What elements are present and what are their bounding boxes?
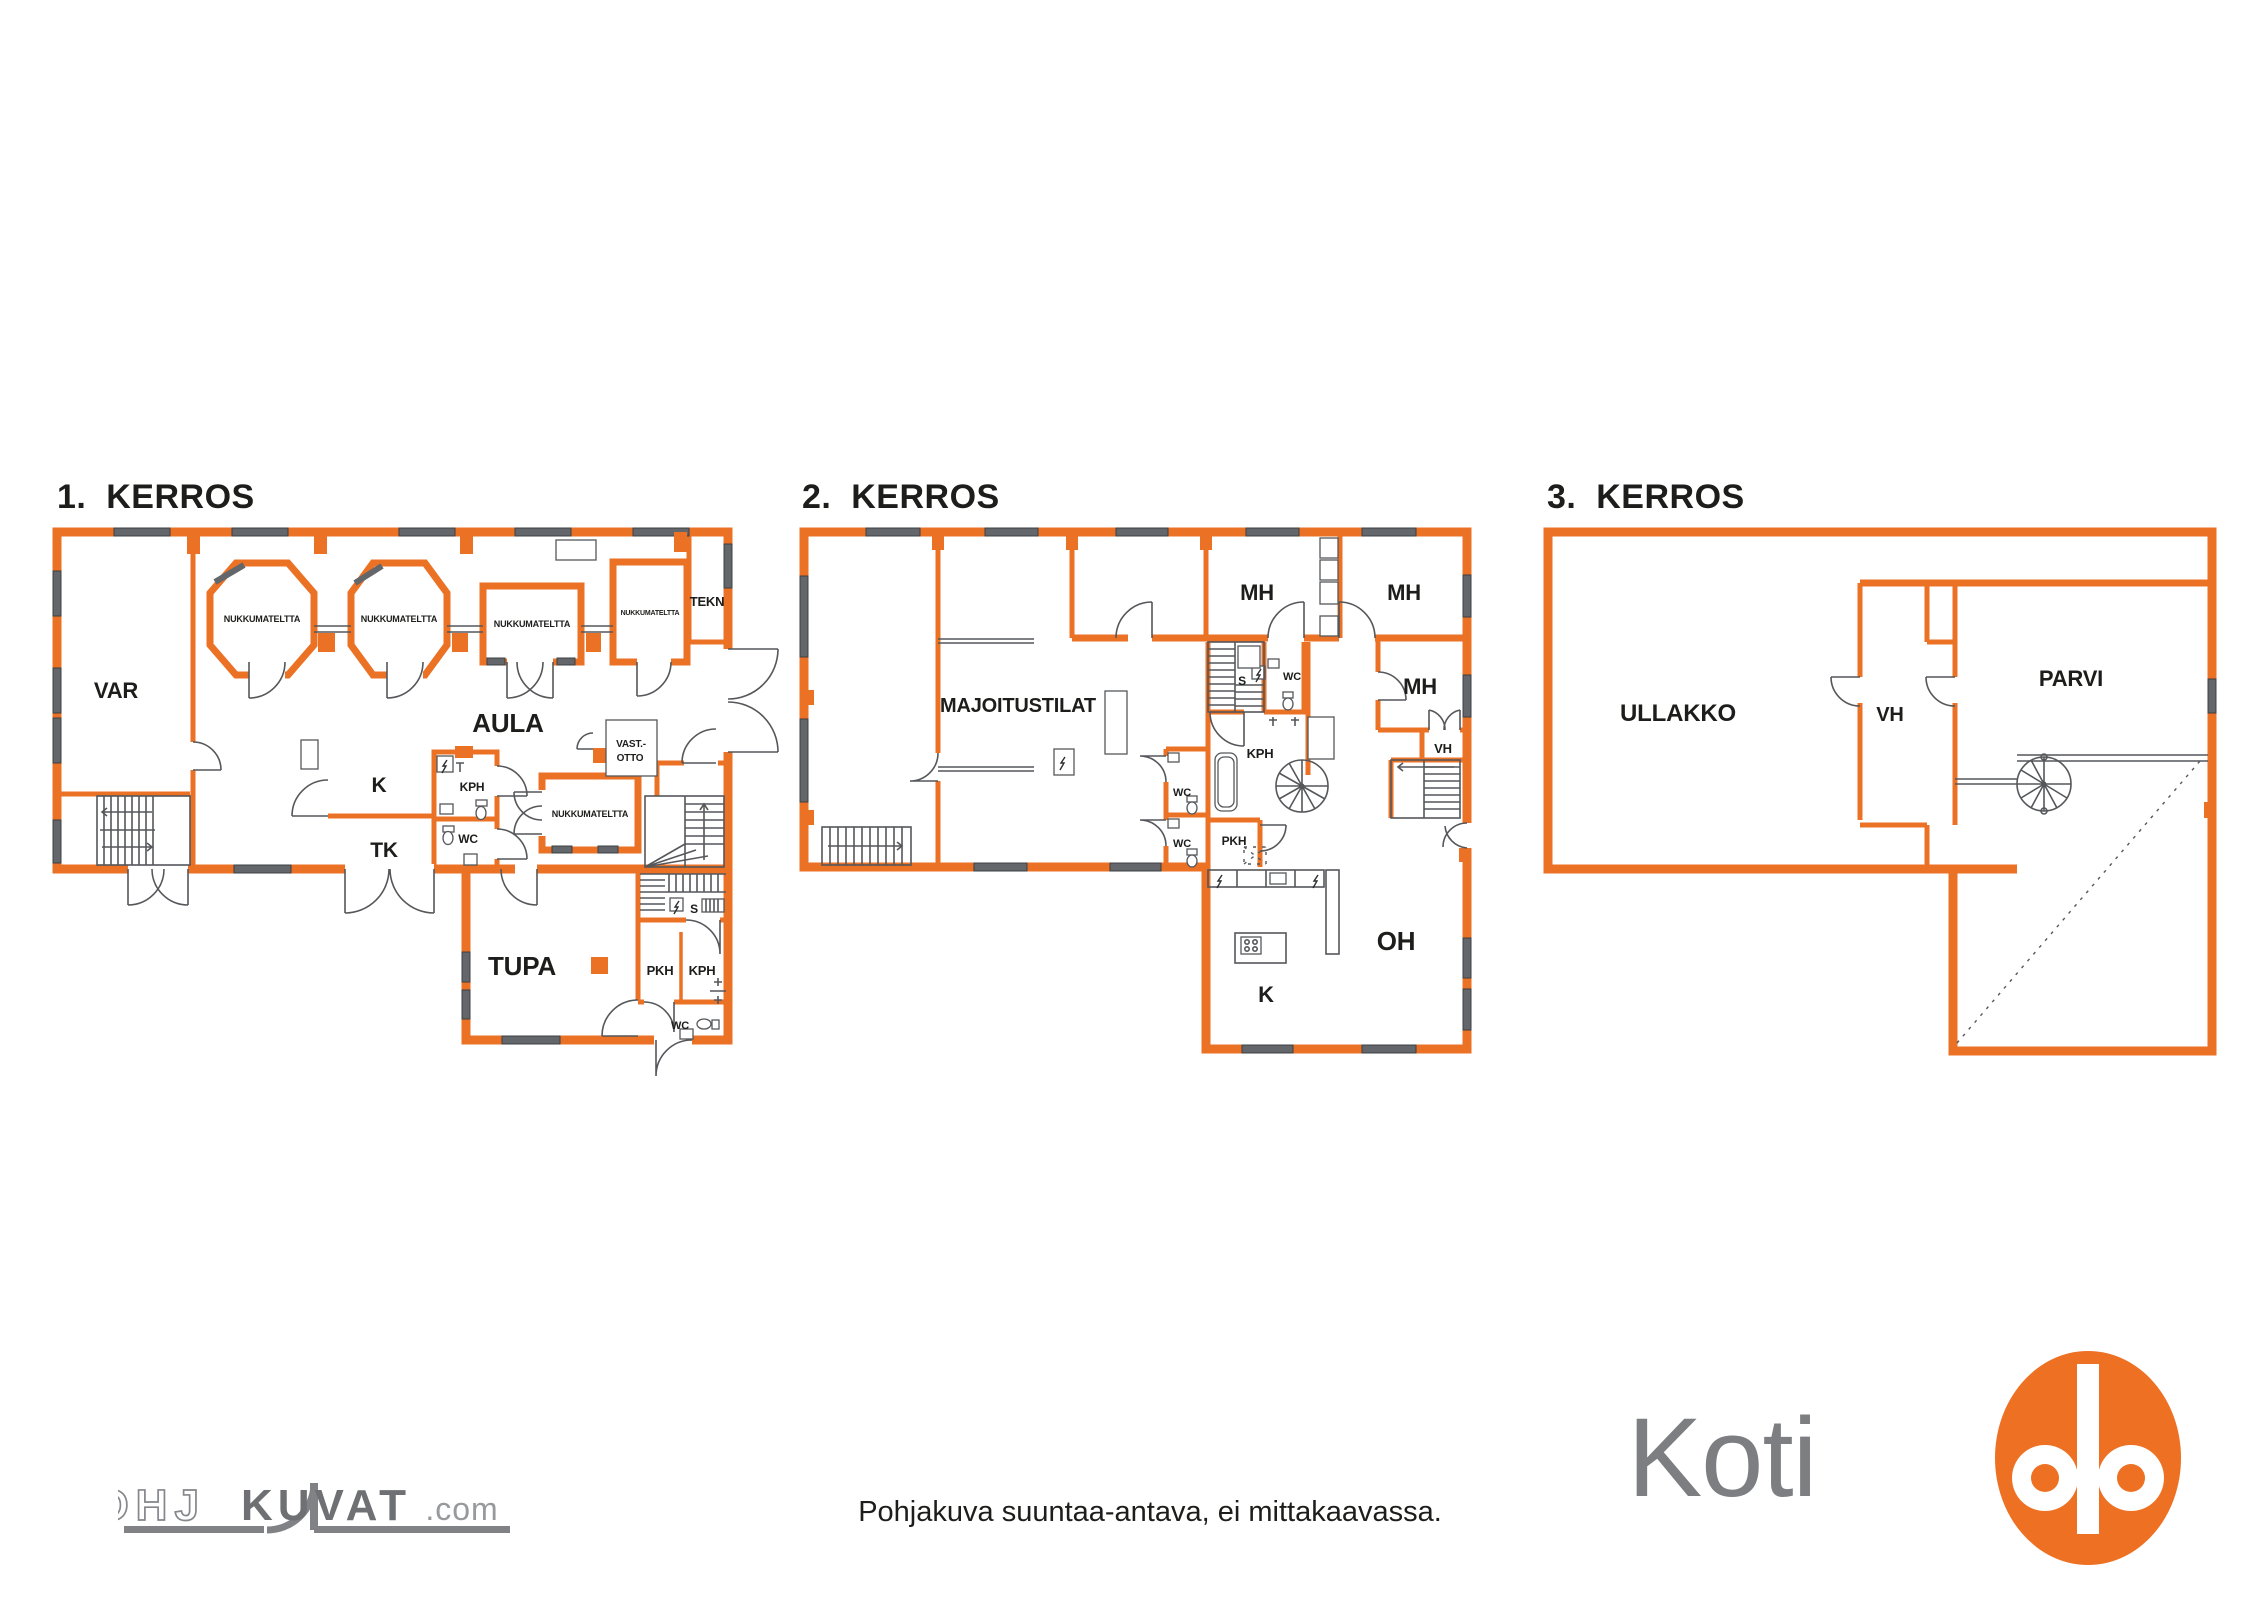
room-label-otto: OTTO bbox=[617, 753, 644, 764]
floorplan-floor2: MAJOITUSTILAT MH MH MH S WC KPH WC WC PK… bbox=[790, 520, 1480, 1080]
room-label-pkh: PKH bbox=[1222, 834, 1247, 848]
room-label-aula: AULA bbox=[472, 708, 544, 738]
opkoti-logo-text: OP Koti bbox=[1620, 1395, 1816, 1520]
pohjakuvat-logo: POHJ KUVAT .com bbox=[118, 1466, 518, 1550]
pohjakuvat-logo-com: .com bbox=[425, 1491, 498, 1527]
floor1-walls bbox=[57, 532, 728, 1040]
room-label-tupa: TUPA bbox=[488, 951, 556, 981]
floor2-wall-stubs bbox=[804, 532, 1471, 862]
room-label-kph-2: KPH bbox=[689, 963, 716, 978]
floor3-title: 3. KERROS bbox=[1547, 478, 1745, 517]
floor3-fixtures bbox=[1955, 755, 2208, 1043]
room-label-s: S bbox=[1238, 674, 1246, 688]
floor3-walls bbox=[1548, 532, 2212, 1051]
room-label-pkh: PKH bbox=[647, 963, 674, 978]
room-label-kph: KPH bbox=[460, 780, 485, 794]
floor3-wall-stubs bbox=[2204, 802, 2216, 818]
floor2-wall-openings bbox=[1462, 823, 1472, 848]
room-label-k: K bbox=[1258, 982, 1274, 1007]
room-label-wc-top: WC bbox=[1283, 671, 1301, 683]
floor2-fixtures bbox=[938, 538, 1339, 963]
floor2-room-labels: MAJOITUSTILAT MH MH MH S WC KPH WC WC PK… bbox=[940, 580, 1452, 1007]
floorplan-floor1: VAR NUKKUMATELTTA NUKKUMATELTTA NUKKUMAT… bbox=[40, 520, 780, 1080]
room-label-nukkumateltta-4: NUKKUMATELTTA bbox=[621, 610, 680, 617]
opkoti-logo: OP Koti bbox=[1620, 1338, 2220, 1573]
floor2-stairs bbox=[822, 642, 1460, 865]
pohjakuvat-logo-pohj: POHJ bbox=[118, 1481, 206, 1530]
floor2-title: 2. KERROS bbox=[802, 478, 1000, 517]
room-label-nukkumateltta-3: NUKKUMATELTTA bbox=[494, 619, 571, 629]
floor1-doors bbox=[128, 649, 778, 1076]
floor1-title: 1. KERROS bbox=[57, 478, 255, 517]
room-label-wc-1: WC bbox=[1173, 787, 1191, 799]
room-label-wc: WC bbox=[458, 832, 478, 846]
floor1-windows bbox=[53, 528, 732, 1044]
room-label-mh-3: MH bbox=[1403, 674, 1437, 699]
floor1-wall-openings bbox=[128, 649, 733, 1045]
room-label-nukkumateltta-2: NUKKUMATELTTA bbox=[361, 614, 438, 624]
floor3-windows bbox=[2208, 679, 2216, 713]
op-logo-icon bbox=[1995, 1351, 2181, 1565]
room-label-parvi: PARVI bbox=[2039, 666, 2103, 691]
floor3-stairs bbox=[2017, 754, 2071, 814]
room-label-ullakko: ULLAKKO bbox=[1620, 700, 1736, 727]
room-label-vast: VAST.- bbox=[616, 739, 646, 750]
room-label-mh-2: MH bbox=[1387, 580, 1421, 605]
room-label-nukkumateltta-1: NUKKUMATELTTA bbox=[224, 614, 301, 624]
room-label-wc-2: WC bbox=[1173, 838, 1191, 850]
room-label-var: VAR bbox=[94, 678, 139, 703]
disclaimer-text: Pohjakuva suuntaa-antava, ei mittakaavas… bbox=[820, 1496, 1480, 1529]
room-label-s: S bbox=[690, 902, 698, 916]
room-label-majoitustilat: MAJOITUSTILAT bbox=[940, 695, 1096, 717]
room-label-k: K bbox=[372, 774, 387, 797]
floor2-walls bbox=[804, 532, 1467, 1049]
room-label-wc-2: WC bbox=[671, 1020, 689, 1032]
pohjakuvat-logo-kuvat: KUVAT bbox=[241, 1481, 411, 1530]
room-label-tekn: TEKN bbox=[690, 594, 725, 609]
room-label-nukkumateltta-5: NUKKUMATELTTA bbox=[552, 809, 629, 819]
floorplan-floor3: ULLAKKO VH PARVI bbox=[1530, 520, 2230, 1080]
floor3-doors bbox=[1831, 677, 1955, 706]
room-label-oh: OH bbox=[1377, 926, 1416, 956]
room-label-vh: VH bbox=[1434, 741, 1452, 756]
room-label-tk: TK bbox=[370, 839, 398, 862]
room-label-mh-1: MH bbox=[1240, 580, 1274, 605]
room-label-kph: KPH bbox=[1247, 746, 1274, 761]
room-label-vh: VH bbox=[1876, 704, 1903, 726]
